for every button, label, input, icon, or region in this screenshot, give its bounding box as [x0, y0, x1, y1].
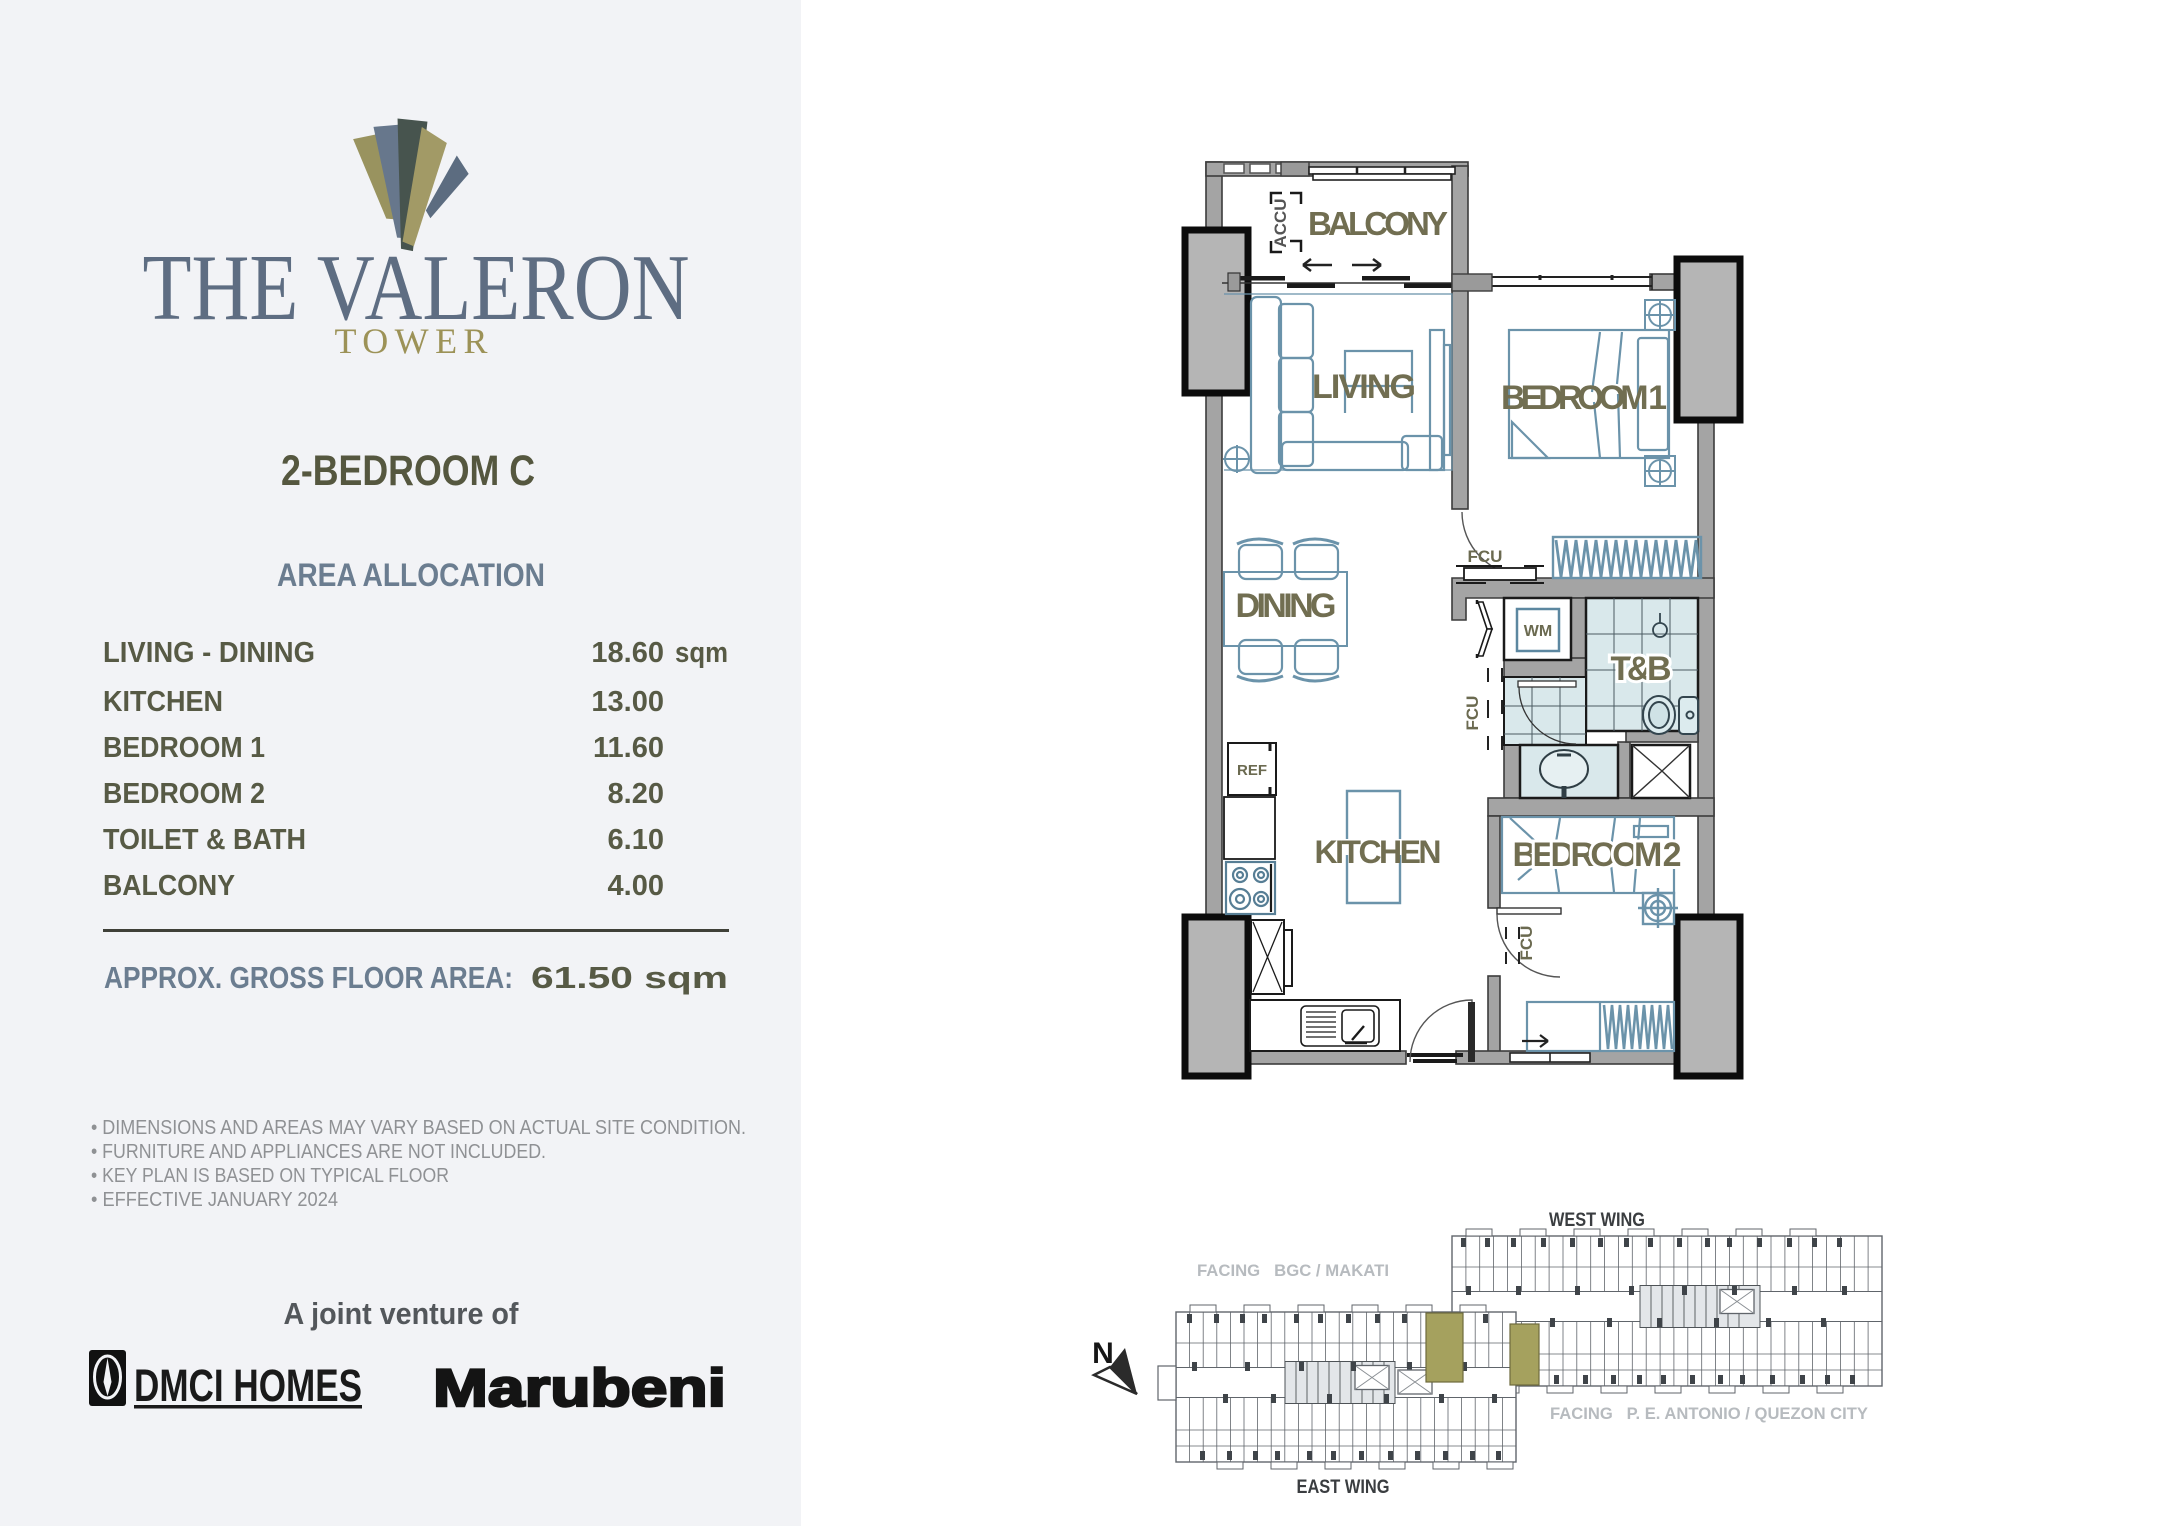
svg-text:FCU: FCU — [1517, 926, 1536, 961]
svg-text:BEDROOM 2: BEDROOM 2 — [1513, 836, 1682, 874]
svg-text:DINING: DINING — [1236, 587, 1337, 625]
svg-text:BEDROOM 2: BEDROOM 2 — [103, 778, 265, 810]
svg-text:AREA ALLOCATION: AREA ALLOCATION — [277, 557, 545, 593]
svg-text:WM: WM — [1524, 623, 1552, 640]
svg-text:KITCHEN: KITCHEN — [103, 686, 223, 718]
svg-text:• EFFECTIVE JANUARY 2024: • EFFECTIVE JANUARY 2024 — [91, 1188, 338, 1211]
svg-text:LIVING - DINING: LIVING - DINING — [103, 637, 315, 669]
svg-text:2-BEDROOM C: 2-BEDROOM C — [281, 448, 535, 495]
svg-text:Marubeni: Marubeni — [433, 1359, 726, 1418]
svg-text:4.00: 4.00 — [608, 870, 664, 902]
svg-text:APPROX. GROSS FLOOR AREA:: APPROX. GROSS FLOOR AREA: — [104, 960, 513, 995]
svg-text:13.00: 13.00 — [591, 686, 664, 718]
svg-text:FCU: FCU — [1463, 696, 1482, 731]
svg-text:FACING P. E. ANTONIO / QUEZO: FACING P. E. ANTONIO / QUEZON CITY — [1550, 1405, 1868, 1423]
svg-text:BEDROOM 1: BEDROOM 1 — [1501, 379, 1667, 417]
svg-text:• DIMENSIONS AND AREAS MAY VAR: • DIMENSIONS AND AREAS MAY VARY BASED ON… — [91, 1116, 746, 1139]
svg-text:sqm: sqm — [675, 637, 728, 669]
svg-text:TOILET & BATH: TOILET & BATH — [103, 824, 306, 856]
svg-text:BALCONY: BALCONY — [103, 870, 235, 902]
svg-text:DMCI HOMES: DMCI HOMES — [134, 1360, 362, 1411]
svg-text:T&B: T&B — [1611, 650, 1672, 688]
svg-text:ACCU: ACCU — [1271, 198, 1290, 247]
svg-text:• KEY PLAN IS BASED ON TYPICAL: • KEY PLAN IS BASED ON TYPICAL FLOOR — [91, 1164, 449, 1187]
svg-text:N: N — [1092, 1337, 1114, 1370]
svg-text:BEDROOM 1: BEDROOM 1 — [103, 732, 265, 764]
svg-text:18.60: 18.60 — [591, 637, 664, 669]
svg-text:11.60: 11.60 — [593, 732, 664, 764]
svg-text:KITCHEN: KITCHEN — [1315, 834, 1442, 870]
svg-text:FACING BGC / MAKATI: FACING BGC / MAKATI — [1197, 1262, 1389, 1280]
svg-text:8.20: 8.20 — [608, 778, 664, 810]
svg-text:BALCONY: BALCONY — [1308, 205, 1448, 242]
svg-text:61.50 sqm: 61.50 sqm — [531, 960, 728, 995]
svg-text:WEST WING: WEST WING — [1549, 1210, 1645, 1231]
svg-text:• FURNITURE AND APPLIANCES ARE: • FURNITURE AND APPLIANCES ARE NOT INCLU… — [91, 1140, 546, 1163]
svg-text:LIVING: LIVING — [1312, 368, 1416, 406]
svg-text:REF: REF — [1237, 762, 1267, 779]
svg-text:EAST WING: EAST WING — [1297, 1477, 1390, 1498]
svg-text:A joint venture of: A joint venture of — [284, 1296, 520, 1331]
svg-text:FCU: FCU — [1468, 547, 1503, 566]
svg-text:6.10: 6.10 — [608, 824, 664, 856]
